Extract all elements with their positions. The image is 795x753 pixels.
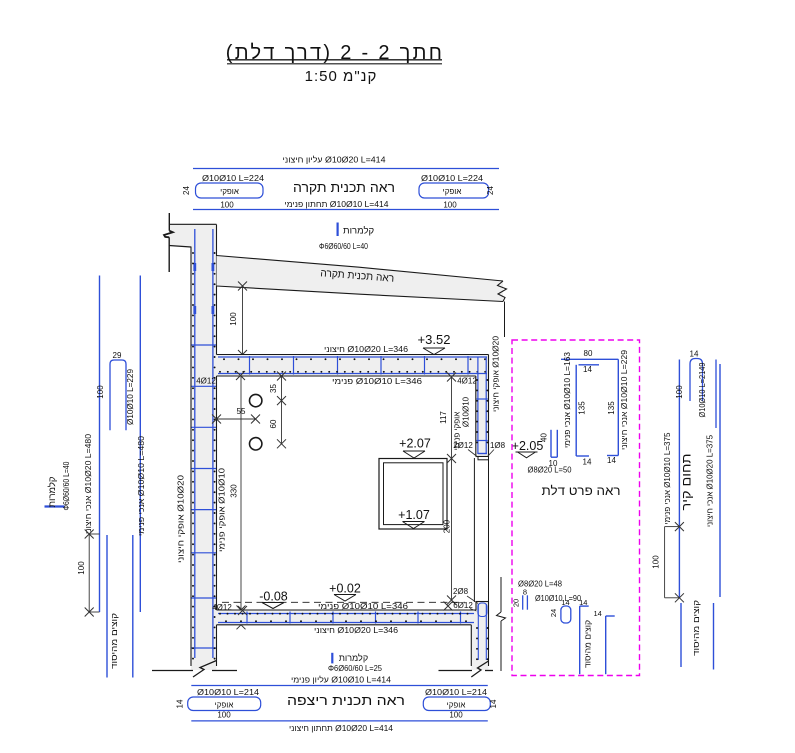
- svg-text:ראה תכנית ריצפה: ראה תכנית ריצפה: [287, 693, 405, 708]
- svg-text:אופקי פנימי: אופקי פנימי: [453, 412, 462, 450]
- svg-text:14: 14: [594, 609, 602, 618]
- svg-text:+3.52: +3.52: [418, 332, 451, 347]
- svg-text:אנכי חיצוני Ø10Ø20 L=480: אנכי חיצוני Ø10Ø20 L=480: [84, 433, 93, 534]
- svg-text:100: 100: [77, 561, 86, 575]
- svg-text:100: 100: [217, 711, 231, 720]
- svg-text:14: 14: [583, 365, 592, 374]
- svg-text:24: 24: [549, 609, 558, 617]
- svg-text:תחום קיר: תחום קיר: [680, 454, 694, 511]
- svg-text:100: 100: [96, 385, 105, 399]
- svg-text:330: 330: [230, 484, 239, 498]
- svg-text:55: 55: [237, 407, 246, 416]
- svg-text:35: 35: [269, 384, 278, 393]
- svg-text:14: 14: [489, 699, 498, 708]
- svg-text:+1.07: +1.07: [398, 508, 430, 522]
- svg-text:100: 100: [220, 201, 234, 210]
- svg-text:8: 8: [523, 588, 527, 597]
- svg-text:אופקי פנימי Ø10Ø10: אופקי פנימי Ø10Ø10: [218, 467, 227, 552]
- svg-text:Ø10Ø10 L=2149: Ø10Ø10 L=2149: [698, 362, 707, 418]
- svg-text:100: 100: [443, 201, 457, 210]
- svg-text:20: 20: [512, 599, 521, 607]
- svg-text:Ø10Ø10 L=214: Ø10Ø10 L=214: [197, 688, 260, 697]
- svg-text:אופקי חיצוני Ø10Ø20: אופקי חיצוני Ø10Ø20: [492, 335, 501, 412]
- svg-text:+0.02: +0.02: [329, 582, 361, 596]
- svg-text:Φ6Ø60/60 L=40: Φ6Ø60/60 L=40: [319, 242, 368, 251]
- svg-text:100: 100: [675, 385, 684, 399]
- svg-text:אנכי חיצוני Ø10Ø10 L=229: אנכי חיצוני Ø10Ø10 L=229: [620, 349, 629, 450]
- svg-text:14: 14: [176, 699, 185, 708]
- svg-text:חיצוני Ø10Ø20 L=346: חיצוני Ø10Ø20 L=346: [314, 626, 399, 635]
- svg-text:אופקי חיצוני Ø10Ø20: אופקי חיצוני Ø10Ø20: [177, 474, 186, 563]
- svg-text:קוצים מהיסוד: קוצים מהיסוד: [584, 620, 593, 668]
- svg-text:אופקי: אופקי: [215, 701, 234, 710]
- svg-text:-0.08: -0.08: [259, 590, 288, 604]
- svg-text:אנכי חיצוני Ø10Ø20 L=375: אנכי חיצוני Ø10Ø20 L=375: [706, 434, 715, 527]
- svg-text:אנכי פנימי Ø10Ø10 L=375: אנכי פנימי Ø10Ø10 L=375: [663, 432, 672, 525]
- svg-text:תחתון פנימי Ø10Ø10 L=414: תחתון פנימי Ø10Ø10 L=414: [285, 200, 390, 209]
- svg-text:4Ø12: 4Ø12: [196, 377, 216, 386]
- svg-text:Φ6Ø60/60 L=40: Φ6Ø60/60 L=40: [62, 461, 71, 510]
- svg-text:Ø10Ø10 L=90: Ø10Ø10 L=90: [535, 594, 582, 603]
- svg-text:פנימי Ø10Ø10 L=346: פנימי Ø10Ø10 L=346: [318, 602, 409, 611]
- svg-text:117: 117: [439, 411, 448, 424]
- svg-text:אופקי: אופקי: [220, 187, 239, 196]
- svg-text:Ø8Ø20 L=50: Ø8Ø20 L=50: [528, 466, 573, 475]
- svg-text:40: 40: [540, 433, 549, 442]
- svg-text:80: 80: [584, 349, 593, 358]
- svg-text:135: 135: [607, 401, 616, 415]
- svg-text:קלמרות: קלמרות: [339, 653, 368, 663]
- svg-text:אופקי: אופקי: [447, 701, 466, 710]
- svg-text:100: 100: [652, 555, 661, 569]
- svg-text:אנכי פנימי Ø10Ø10 L=480: אנכי פנימי Ø10Ø10 L=480: [137, 435, 146, 536]
- svg-text:קוצים מהיסוד: קוצים מהיסוד: [692, 600, 701, 656]
- svg-text:14: 14: [607, 456, 616, 465]
- svg-text:Ø10Ø10: Ø10Ø10: [462, 396, 471, 427]
- svg-text:24: 24: [182, 186, 191, 195]
- svg-text:200: 200: [443, 519, 452, 533]
- svg-text:100: 100: [449, 711, 463, 720]
- svg-text:Ø10Ø10 L=224: Ø10Ø10 L=224: [202, 174, 265, 183]
- svg-text:4Ø12: 4Ø12: [212, 603, 232, 612]
- svg-text:אנכי פנימי Ø10Ø10 L=163: אנכי פנימי Ø10Ø10 L=163: [563, 351, 572, 448]
- svg-text:135: 135: [578, 401, 587, 415]
- svg-text:Ø10Ø10 L=229: Ø10Ø10 L=229: [126, 368, 135, 425]
- svg-text:חיצוני Ø10Ø20 L=346: חיצוני Ø10Ø20 L=346: [324, 345, 409, 354]
- svg-text:4Ø12: 4Ø12: [457, 377, 477, 386]
- svg-text:קלמרות: קלמרות: [343, 225, 374, 237]
- svg-text:עליון חיצוני Ø10Ø20 L=414: עליון חיצוני Ø10Ø20 L=414: [283, 156, 387, 165]
- svg-text:60: 60: [269, 419, 278, 428]
- svg-text:קלמרות: קלמרות: [46, 476, 58, 507]
- svg-text:2Ø8: 2Ø8: [453, 587, 469, 596]
- svg-text:קוצים מהיסוד: קוצים מהיסוד: [110, 613, 119, 669]
- svg-text:14: 14: [690, 350, 699, 359]
- svg-text:+2.07: +2.07: [399, 437, 431, 451]
- svg-text:Φ6Ø60/60 L=25: Φ6Ø60/60 L=25: [328, 664, 383, 673]
- svg-text:14: 14: [583, 458, 592, 467]
- svg-text:עליון פנימי Ø10Ø10 L=414: עליון פנימי Ø10Ø10 L=414: [291, 676, 392, 685]
- svg-text:תחתון חיצוני Ø10Ø20 L=414: תחתון חיצוני Ø10Ø20 L=414: [289, 724, 394, 733]
- svg-text:24: 24: [486, 186, 495, 195]
- svg-text:ראה פרט דלת: ראה פרט דלת: [542, 484, 621, 498]
- svg-text:ראה תכנית תקרה: ראה תכנית תקרה: [293, 180, 395, 195]
- svg-text:29: 29: [113, 351, 122, 360]
- svg-text:Ø10Ø10 L=224: Ø10Ø10 L=224: [421, 174, 484, 183]
- svg-text:1Ø8: 1Ø8: [490, 441, 506, 450]
- svg-text:100: 100: [229, 312, 238, 326]
- svg-text:אופקי: אופקי: [443, 187, 462, 196]
- svg-text:Ø10Ø10 L=214: Ø10Ø10 L=214: [425, 688, 488, 697]
- svg-text:פנימי Ø10Ø10 L=346: פנימי Ø10Ø10 L=346: [332, 377, 423, 386]
